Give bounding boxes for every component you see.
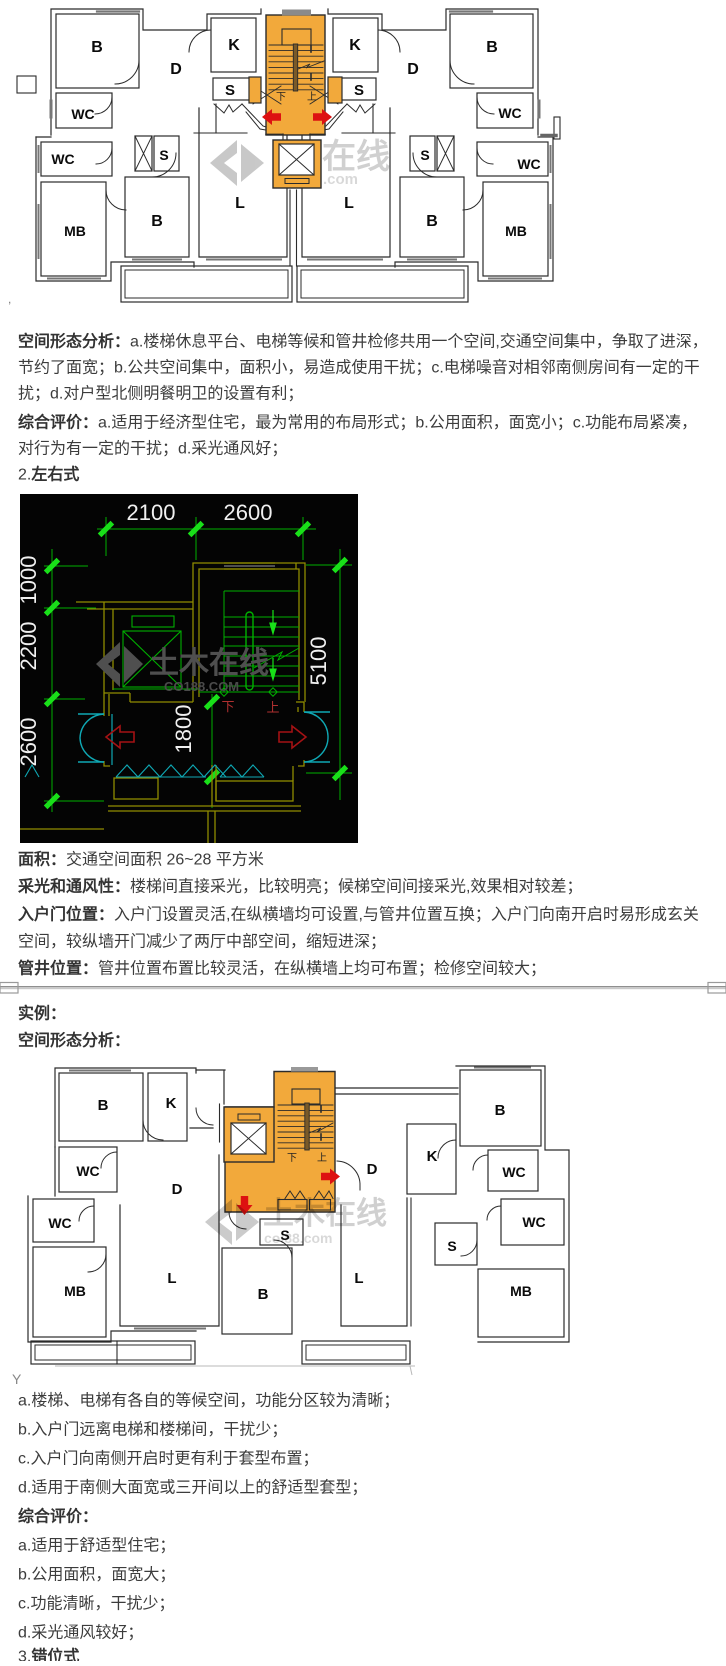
- svg-text:空间形态分析：a.楼梯休息平台、电梯等候和管井检修共用一个空: 空间形态分析：a.楼梯休息平台、电梯等候和管井检修共用一个空间,交通空间集中，争…: [18, 332, 708, 351]
- svg-text:入户门位置：入户门设置灵活,在纵横墙均可设置,与管井位置互换: 入户门位置：入户门设置灵活,在纵横墙均可设置,与管井位置互换；入户门向南开启时易…: [18, 905, 699, 924]
- svg-text:MB: MB: [510, 1283, 532, 1299]
- svg-text:2600: 2600: [16, 718, 41, 767]
- svg-text:K: K: [228, 37, 240, 54]
- svg-text:MB: MB: [64, 1283, 86, 1299]
- svg-text:b.入户门远离电梯和楼梯间，干扰少；: b.入户门远离电梯和楼梯间，干扰少；: [18, 1421, 287, 1439]
- svg-text:S: S: [420, 147, 429, 163]
- svg-text:Y: Y: [12, 1371, 22, 1387]
- svg-text:2100: 2100: [127, 500, 176, 525]
- svg-text:1000: 1000: [16, 556, 41, 605]
- svg-text:B: B: [486, 39, 498, 56]
- svg-text:D: D: [170, 61, 182, 78]
- svg-text:WC: WC: [522, 1214, 545, 1230]
- svg-text:上: 上: [317, 1152, 327, 1164]
- svg-text:面积：交通空间面积 26~28 平方米: 面积：交通空间面积 26~28 平方米: [18, 851, 264, 869]
- svg-text:S: S: [225, 82, 235, 99]
- svg-text:K: K: [427, 1148, 438, 1165]
- svg-text:S: S: [447, 1238, 456, 1254]
- svg-text:空间，较纵墙开门减少了两厅中部空间，缩短进深；: 空间，较纵墙开门减少了两厅中部空间，缩短进深；: [18, 933, 386, 951]
- svg-text:对行为有一定的干扰；d.采光通风好；: 对行为有一定的干扰；d.采光通风好；: [18, 440, 287, 458]
- svg-text:L: L: [235, 195, 245, 212]
- svg-text:L: L: [344, 195, 354, 212]
- svg-text:S: S: [354, 82, 364, 99]
- svg-text:B: B: [91, 39, 103, 56]
- svg-text:B: B: [426, 213, 438, 230]
- svg-text:WC: WC: [502, 1164, 525, 1180]
- svg-text:a.适用于舒适型住宅；: a.适用于舒适型住宅；: [18, 1537, 175, 1555]
- svg-text:下: 下: [276, 92, 286, 103]
- svg-text:D: D: [367, 1161, 378, 1178]
- svg-text:2.左右式: 2.左右式: [18, 465, 79, 484]
- svg-text:下: 下: [221, 699, 234, 714]
- svg-text:CO188.COM: CO188.COM: [164, 679, 239, 694]
- svg-text:综合评价：: 综合评价：: [18, 1507, 98, 1526]
- svg-text:管井位置：管井位置布置比较灵活，在纵横墙上均可布置；检修空间: 管井位置：管井位置布置比较灵活，在纵横墙上均可布置；检修空间较大；: [18, 959, 546, 978]
- svg-text:土木在线: 土木在线: [149, 647, 269, 680]
- svg-text:WC: WC: [517, 156, 540, 172]
- svg-text:coi88.com: coi88.com: [264, 1230, 332, 1246]
- svg-text:WC: WC: [71, 106, 94, 122]
- svg-text:2200: 2200: [16, 622, 41, 671]
- svg-text:L: L: [354, 1270, 363, 1287]
- svg-text:扰；d.对户型北侧明餐明卫的设置有利；: 扰；d.对户型北侧明餐明卫的设置有利；: [18, 385, 303, 403]
- svg-text:MB: MB: [64, 223, 86, 239]
- svg-text:1800: 1800: [171, 705, 196, 754]
- svg-text:d.适用于南侧大面宽或三开间以上的舒适型套型；: d.适用于南侧大面宽或三开间以上的舒适型套型；: [18, 1479, 367, 1497]
- svg-text:上: 上: [266, 700, 279, 715]
- svg-text:B: B: [98, 1097, 109, 1114]
- svg-text:WC: WC: [498, 105, 521, 121]
- svg-text:WC: WC: [76, 1163, 99, 1179]
- svg-text:c.入户门向南侧开启时更有利于套型布置；: c.入户门向南侧开启时更有利于套型布置；: [18, 1450, 318, 1468]
- svg-text:B: B: [258, 1286, 269, 1303]
- svg-text:3.错位式: 3.错位式: [18, 1647, 79, 1662]
- svg-text:c.功能清晰，干扰少；: c.功能清晰，干扰少；: [18, 1595, 174, 1613]
- svg-text:d.采光通风较好；: d.采光通风较好；: [18, 1624, 143, 1642]
- svg-text:S: S: [159, 147, 168, 163]
- svg-text:a.楼梯、电梯有各自的等候空间，功能分区较为清晰；: a.楼梯、电梯有各自的等候空间，功能分区较为清晰；: [18, 1392, 399, 1410]
- svg-text:2600: 2600: [224, 500, 273, 525]
- svg-text:土木在线: 土木在线: [263, 1196, 387, 1231]
- svg-text:,: ,: [8, 292, 11, 306]
- svg-text:空间形态分析：: 空间形态分析：: [18, 1031, 130, 1050]
- svg-text:实例：: 实例：: [18, 1004, 66, 1023]
- svg-text:下: 下: [287, 1153, 297, 1164]
- svg-text:L: L: [167, 1270, 176, 1287]
- svg-text:.com: .com: [323, 171, 358, 188]
- svg-text:5100: 5100: [306, 637, 331, 686]
- svg-text:WC: WC: [51, 151, 74, 167]
- svg-text:采光和通风性：楼梯间直接采光，比较明亮；候梯空间间接采光,效: 采光和通风性：楼梯间直接采光，比较明亮；候梯空间间接采光,效果相对较差；: [17, 877, 582, 896]
- svg-text:D: D: [172, 1181, 183, 1198]
- svg-text:节约了面宽；b.公共空间集中，面积小，易造成使用干扰；c.电: 节约了面宽；b.公共空间集中，面积小，易造成使用干扰；c.电梯噪音对相邻南侧房间…: [18, 359, 700, 377]
- svg-text:K: K: [166, 1095, 177, 1112]
- svg-text:D: D: [407, 61, 419, 78]
- svg-text:上: 上: [307, 91, 317, 103]
- svg-text:MB: MB: [505, 223, 527, 239]
- svg-text:综合评价：a.适用于经济型住宅，最为常用的布局形式；b.公用: 综合评价：a.适用于经济型住宅，最为常用的布局形式；b.公用面积，面宽小；c.功…: [18, 413, 697, 432]
- svg-text:WC: WC: [48, 1215, 71, 1231]
- svg-text:K: K: [349, 37, 361, 54]
- svg-text:B: B: [151, 213, 163, 230]
- svg-text:B: B: [495, 1102, 506, 1119]
- svg-text:b.公用面积，面宽大；: b.公用面积，面宽大；: [18, 1566, 175, 1584]
